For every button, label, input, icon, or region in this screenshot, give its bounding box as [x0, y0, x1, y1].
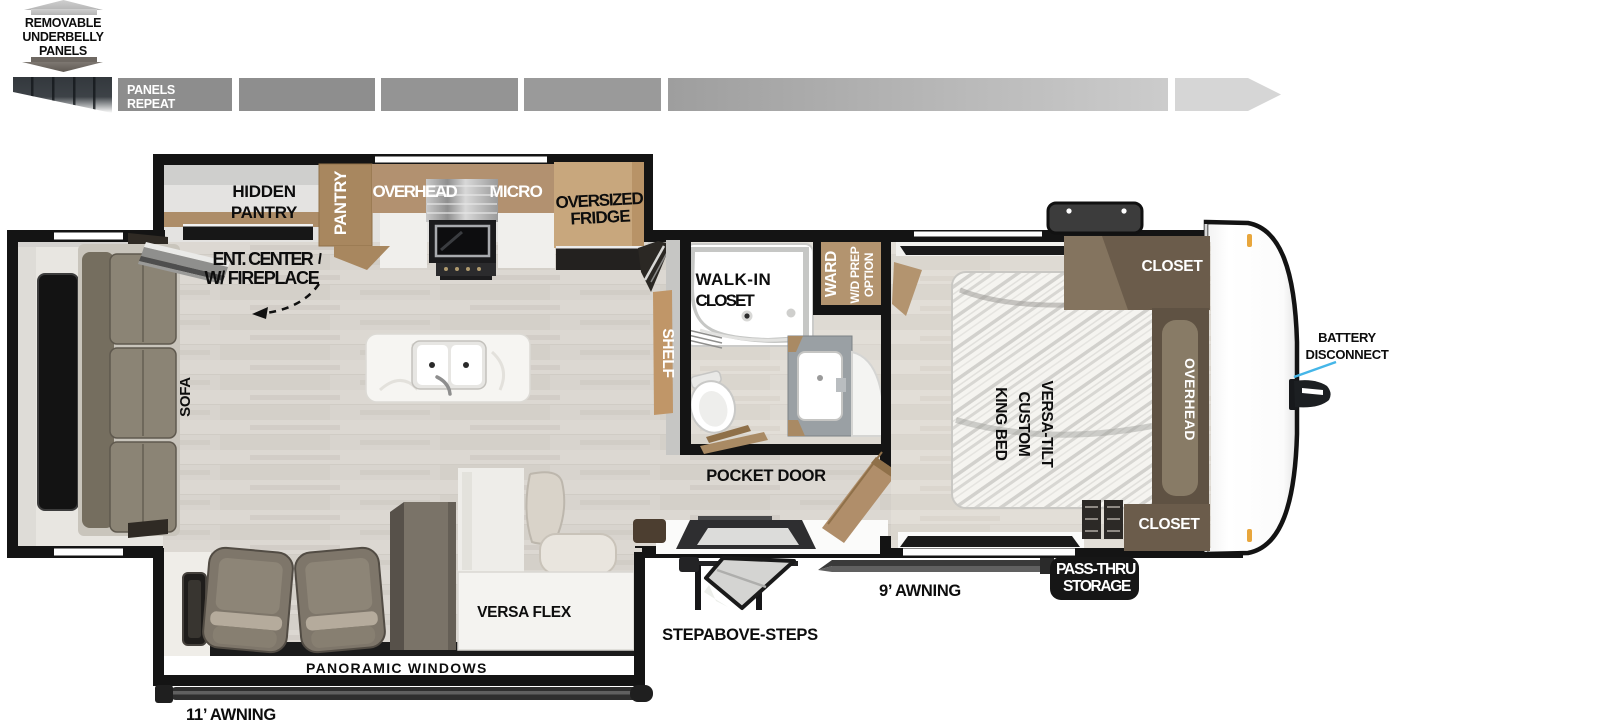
- svg-text:OVERHEAD: OVERHEAD: [373, 182, 458, 201]
- svg-text:PANTRY: PANTRY: [332, 171, 350, 235]
- svg-text:MICRO: MICRO: [490, 182, 543, 201]
- svg-text:STEPABOVE-STEPS: STEPABOVE-STEPS: [662, 626, 818, 644]
- svg-text:POCKET DOOR: POCKET DOOR: [706, 467, 826, 485]
- svg-text:SOFA: SOFA: [177, 377, 194, 417]
- svg-text:9’ AWNING: 9’ AWNING: [879, 582, 961, 600]
- svg-text:STORAGE: STORAGE: [1063, 578, 1131, 595]
- svg-text:REPEAT: REPEAT: [127, 97, 176, 111]
- svg-text:PANELS: PANELS: [39, 44, 87, 58]
- svg-text:W/ FIREPLACE: W/ FIREPLACE: [205, 268, 320, 288]
- svg-text:VERSA FLEX: VERSA FLEX: [477, 604, 572, 621]
- svg-text:OVERHEAD: OVERHEAD: [1182, 358, 1198, 440]
- svg-text:DISCONNECT: DISCONNECT: [1306, 347, 1389, 362]
- svg-text:PASS-THRU: PASS-THRU: [1056, 561, 1136, 578]
- svg-text:W/D PREP: W/D PREP: [848, 246, 862, 303]
- svg-text:REMOVABLE: REMOVABLE: [25, 16, 101, 30]
- svg-text:PANELS: PANELS: [127, 83, 175, 97]
- svg-text:PANORAMIC WINDOWS: PANORAMIC WINDOWS: [306, 660, 486, 676]
- svg-text:CLOSET: CLOSET: [696, 291, 756, 310]
- svg-text:OPTION: OPTION: [862, 253, 876, 297]
- svg-text:CUSTOM: CUSTOM: [1015, 391, 1032, 456]
- svg-text:BATTERY: BATTERY: [1318, 330, 1376, 345]
- svg-text:CLOSET: CLOSET: [1142, 258, 1204, 275]
- svg-text:PANTRY: PANTRY: [231, 203, 298, 222]
- svg-text:WALK-IN: WALK-IN: [696, 270, 771, 289]
- svg-text:HIDDEN: HIDDEN: [232, 182, 295, 201]
- svg-text:CLOSET: CLOSET: [1139, 516, 1201, 533]
- svg-text:UNDERBELLY: UNDERBELLY: [22, 30, 104, 44]
- svg-text:11’ AWNING: 11’ AWNING: [186, 706, 276, 722]
- svg-text:FRIDGE: FRIDGE: [570, 206, 631, 228]
- svg-text:ENT. CENTER: ENT. CENTER: [213, 249, 314, 269]
- svg-text:WARD: WARD: [823, 251, 840, 297]
- svg-text:KING BED: KING BED: [992, 387, 1009, 460]
- svg-text:SHELF: SHELF: [659, 328, 676, 377]
- svg-text:VERSA-TILT: VERSA-TILT: [1038, 380, 1055, 468]
